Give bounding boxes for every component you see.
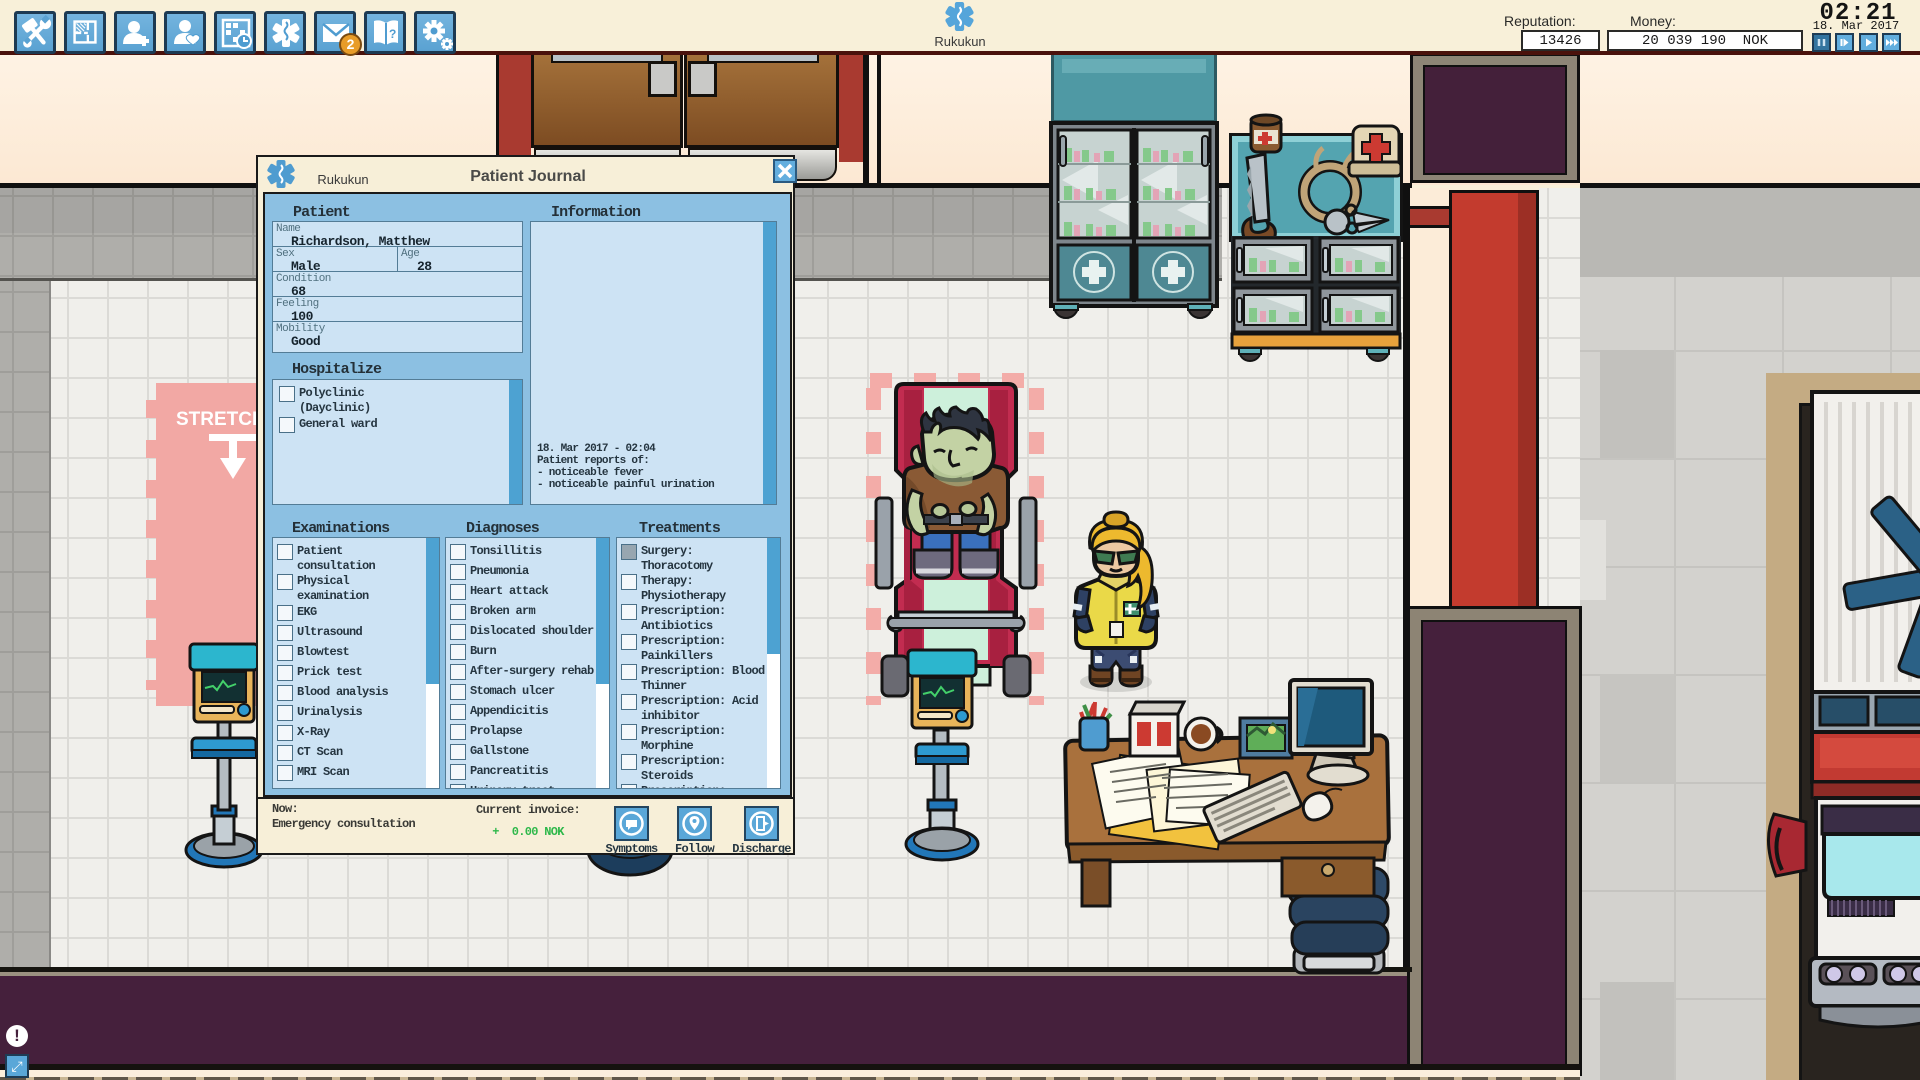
svg-text:?: ?: [389, 27, 396, 41]
